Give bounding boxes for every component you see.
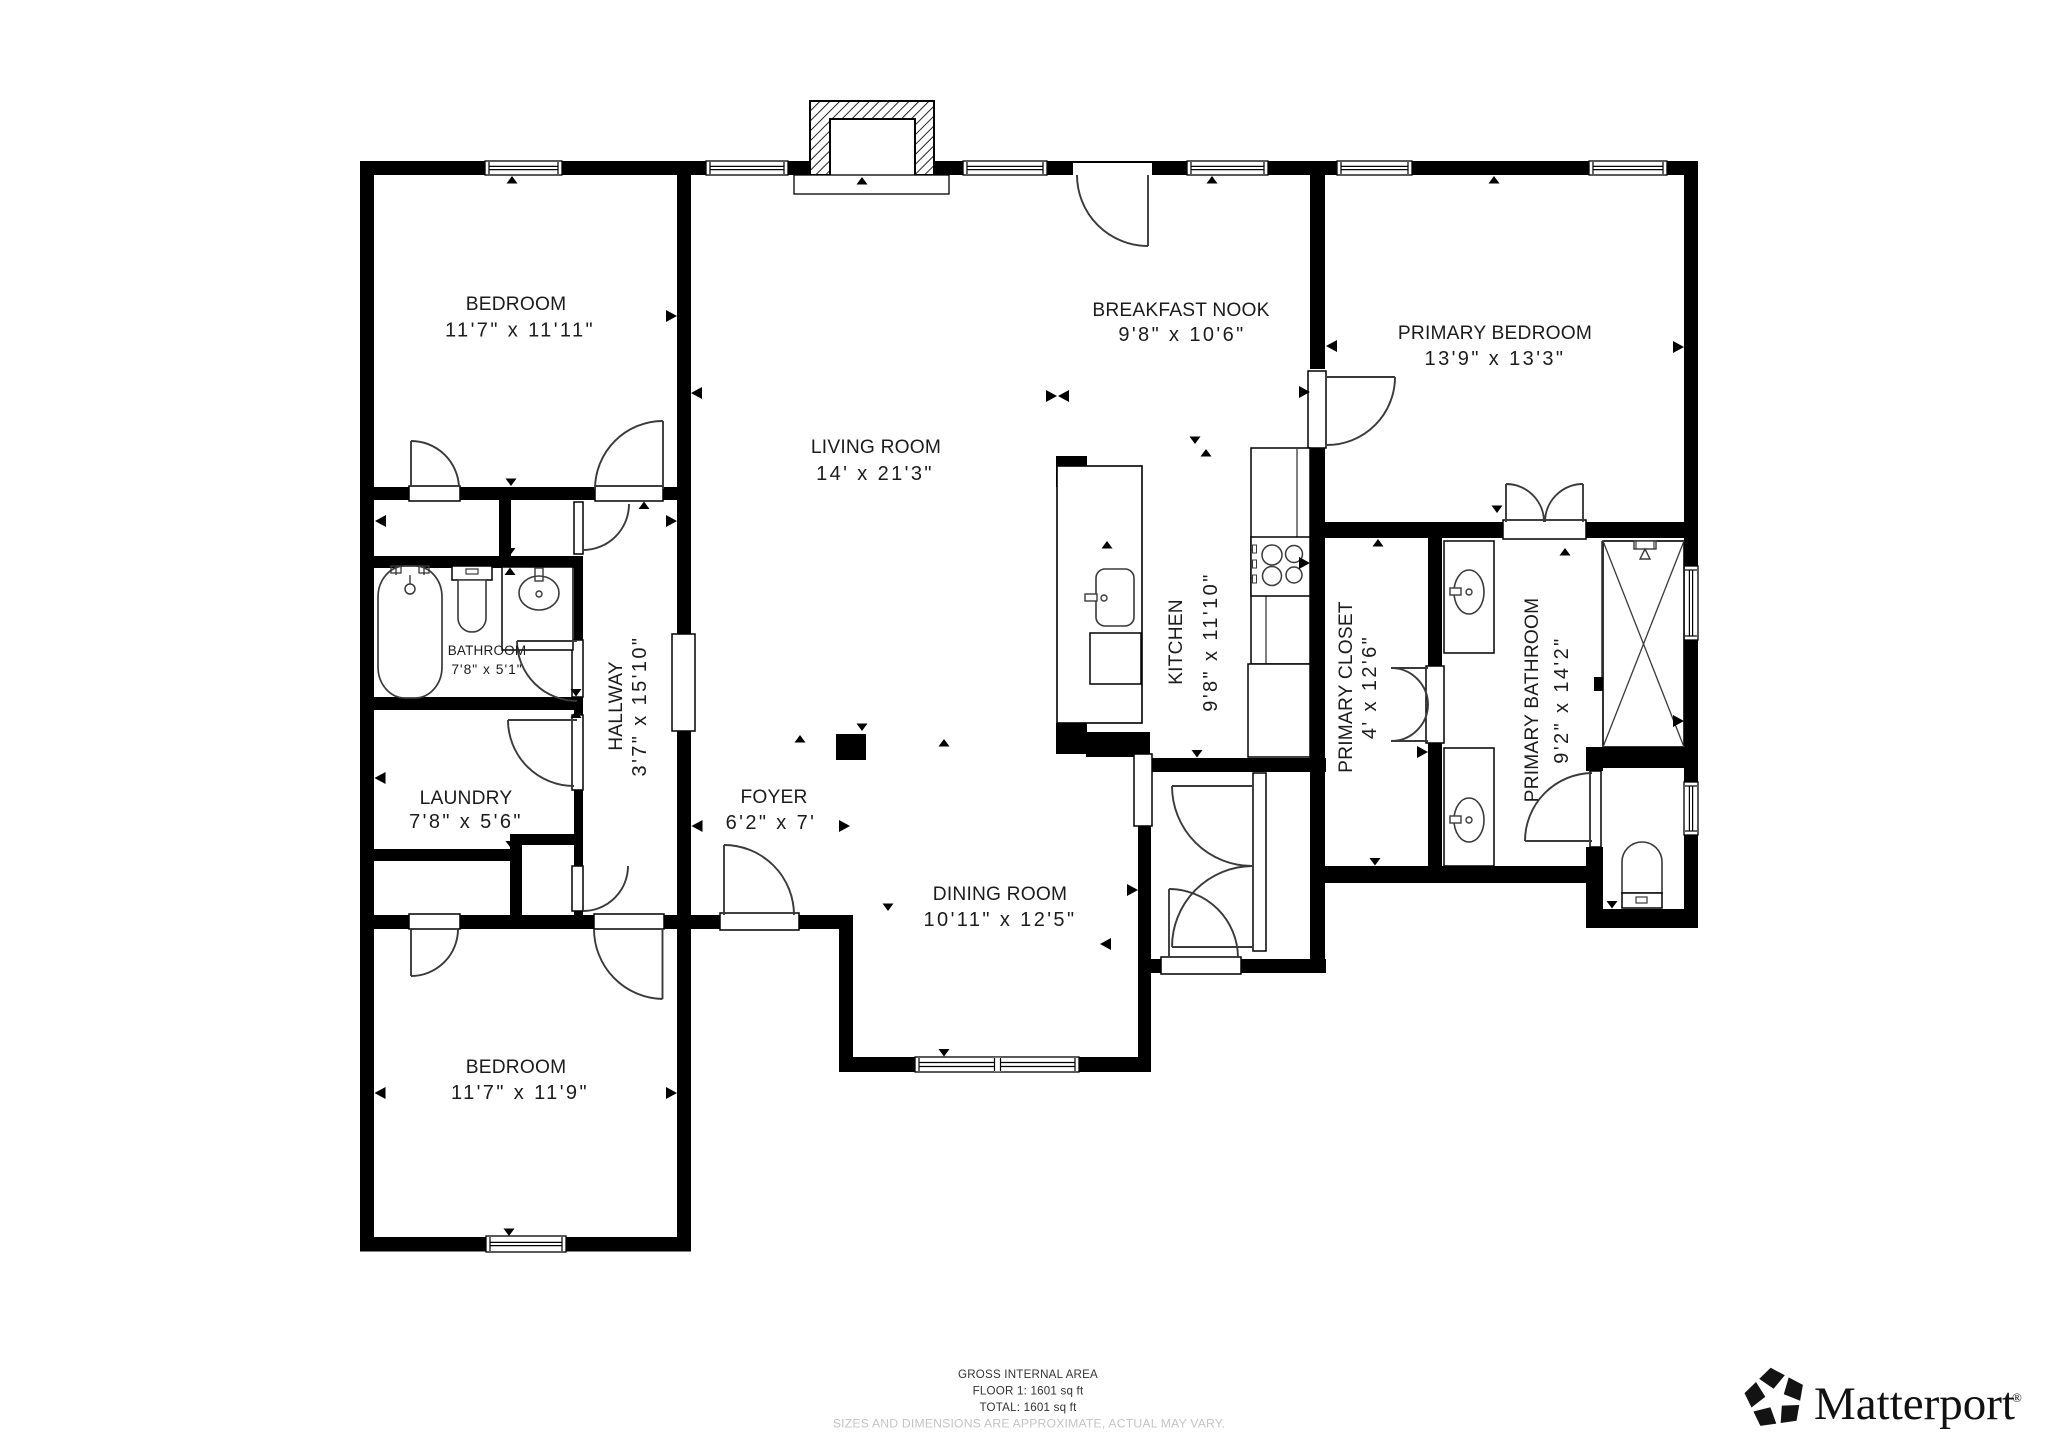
svg-text:BREAKFAST NOOK: BREAKFAST NOOK: [1092, 300, 1269, 321]
svg-text:LAUNDRY: LAUNDRY: [420, 788, 513, 809]
svg-text:10'11" x 12'5": 10'11" x 12'5": [924, 909, 1077, 931]
svg-text:11'7" x 11'11": 11'7" x 11'11": [445, 320, 595, 342]
svg-text:PRIMARY BEDROOM: PRIMARY BEDROOM: [1398, 323, 1592, 344]
svg-text:GROSS INTERNAL AREA: GROSS INTERNAL AREA: [958, 1368, 1098, 1381]
svg-text:14' x 21'3": 14' x 21'3": [816, 463, 934, 485]
svg-text:FLOOR 1: 1601 sq ft: FLOOR 1: 1601 sq ft: [973, 1385, 1084, 1398]
svg-text:Matterport: Matterport: [1814, 1378, 2015, 1430]
svg-text:FOYER: FOYER: [740, 787, 807, 808]
svg-text:13'9" x 13'3": 13'9" x 13'3": [1425, 348, 1566, 370]
svg-text:7'8" x 5'6": 7'8" x 5'6": [409, 811, 523, 833]
svg-text:9'8" x 11'10": 9'8" x 11'10": [1200, 572, 1222, 711]
svg-text:PRIMARY BATHROOM: PRIMARY BATHROOM: [1522, 598, 1543, 803]
svg-text:BATHROOM: BATHROOM: [448, 643, 527, 658]
svg-text:6'2" x 7': 6'2" x 7': [726, 812, 817, 834]
svg-text:HALLWAY: HALLWAY: [606, 661, 627, 751]
svg-text:11'7" x 11'9": 11'7" x 11'9": [451, 1082, 589, 1104]
svg-text:TOTAL: 1601 sq ft: TOTAL: 1601 sq ft: [979, 1401, 1077, 1414]
svg-text:9'8" x 10'6": 9'8" x 10'6": [1118, 324, 1245, 346]
svg-text:DINING ROOM: DINING ROOM: [933, 884, 1067, 905]
svg-text:LIVING ROOM: LIVING ROOM: [811, 437, 941, 458]
svg-text:BEDROOM: BEDROOM: [466, 294, 567, 315]
svg-text:7'8" x 5'1": 7'8" x 5'1": [451, 662, 522, 677]
svg-text:KITCHEN: KITCHEN: [1166, 599, 1187, 685]
svg-text:BEDROOM: BEDROOM: [466, 1057, 567, 1078]
svg-text:®: ®: [2012, 1390, 2022, 1405]
svg-text:PRIMARY CLOSET: PRIMARY CLOSET: [1336, 601, 1357, 773]
svg-text:9'2" x 14'2": 9'2" x 14'2": [1551, 636, 1573, 763]
svg-text:SIZES AND DIMENSIONS ARE APPRO: SIZES AND DIMENSIONS ARE APPROXIMATE, AC…: [833, 1417, 1225, 1431]
svg-text:4' x 12'6": 4' x 12'6": [1359, 635, 1381, 739]
svg-text:3'7" x 15'10": 3'7" x 15'10": [629, 636, 651, 777]
